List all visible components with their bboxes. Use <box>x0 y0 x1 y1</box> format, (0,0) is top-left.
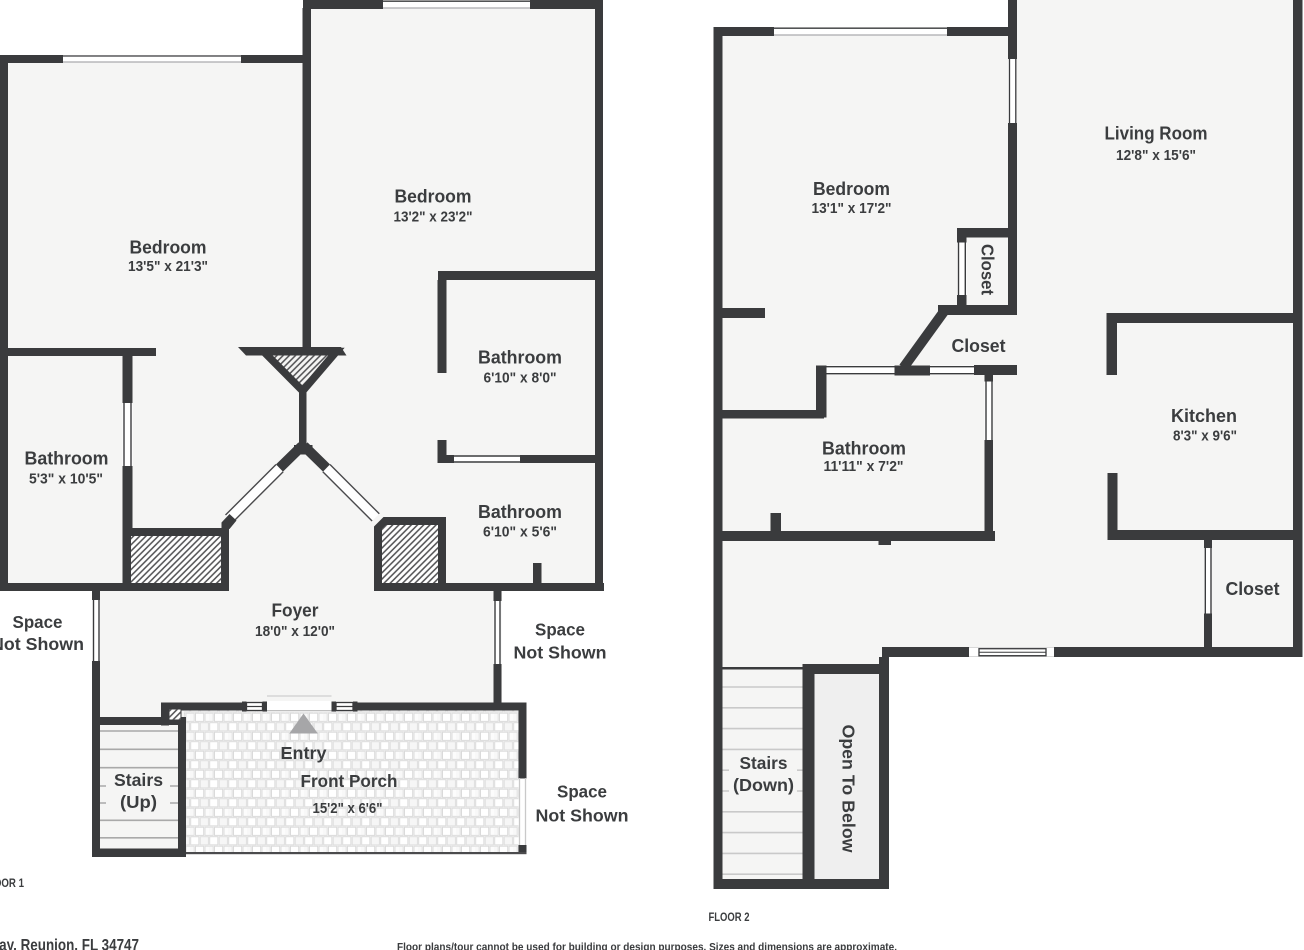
svg-text:Not Shown: Not Shown <box>536 806 629 826</box>
svg-text:8'3" x 9'6": 8'3" x 9'6" <box>1173 429 1237 445</box>
svg-text:Closet: Closet <box>978 244 998 295</box>
svg-text:13'5" x 21'3": 13'5" x 21'3" <box>128 259 208 275</box>
svg-text:Open To Below: Open To Below <box>839 725 859 853</box>
svg-text:11'11" x 7'2": 11'11" x 7'2" <box>824 459 904 475</box>
svg-text:Way, Reunion, FL 34747: Way, Reunion, FL 34747 <box>0 937 139 950</box>
svg-text:13'2" x 23'2": 13'2" x 23'2" <box>394 210 473 226</box>
svg-text:Bathroom: Bathroom <box>25 448 109 469</box>
svg-text:13'1" x 17'2": 13'1" x 17'2" <box>812 201 892 217</box>
svg-text:(Up): (Up) <box>120 792 157 812</box>
svg-text:6'10" x 5'6": 6'10" x 5'6" <box>483 525 557 541</box>
svg-text:Space: Space <box>535 620 585 640</box>
svg-text:Floor plans/tour cannot be use: Floor plans/tour cannot be used for buil… <box>397 942 897 950</box>
svg-text:Stairs: Stairs <box>740 753 788 773</box>
svg-text:18'0" x 12'0": 18'0" x 12'0" <box>255 624 335 640</box>
svg-text:Not Shown: Not Shown <box>514 643 607 663</box>
svg-text:FLOOR 2: FLOOR 2 <box>709 910 750 924</box>
svg-text:Space: Space <box>13 612 63 632</box>
svg-text:Bedroom: Bedroom <box>395 186 472 207</box>
svg-text:Entry: Entry <box>281 743 327 763</box>
svg-text:Foyer: Foyer <box>272 600 319 621</box>
svg-text:5'3" x 10'5": 5'3" x 10'5" <box>29 472 103 488</box>
svg-text:Front Porch: Front Porch <box>301 771 398 791</box>
svg-text:Bedroom: Bedroom <box>813 178 890 199</box>
svg-text:15'2" x 6'6": 15'2" x 6'6" <box>313 801 383 817</box>
svg-text:6'10" x 8'0": 6'10" x 8'0" <box>484 371 557 387</box>
svg-text:Closet: Closet <box>1226 578 1280 599</box>
svg-text:FLOOR 1: FLOOR 1 <box>0 876 24 890</box>
svg-text:Bathroom: Bathroom <box>478 501 562 522</box>
svg-text:Living Room: Living Room <box>1105 123 1208 144</box>
svg-text:Bathroom: Bathroom <box>822 438 906 459</box>
svg-text:Stairs: Stairs <box>114 770 163 790</box>
svg-text:Closet: Closet <box>952 335 1006 356</box>
svg-text:(Down): (Down) <box>733 775 794 795</box>
svg-text:Bathroom: Bathroom <box>478 347 562 368</box>
svg-text:Kitchen: Kitchen <box>1171 405 1237 426</box>
svg-text:Not Shown: Not Shown <box>0 634 84 654</box>
svg-text:Bedroom: Bedroom <box>130 237 207 258</box>
svg-text:12'8" x 15'6": 12'8" x 15'6" <box>1116 148 1196 164</box>
svg-text:Space: Space <box>557 782 607 802</box>
